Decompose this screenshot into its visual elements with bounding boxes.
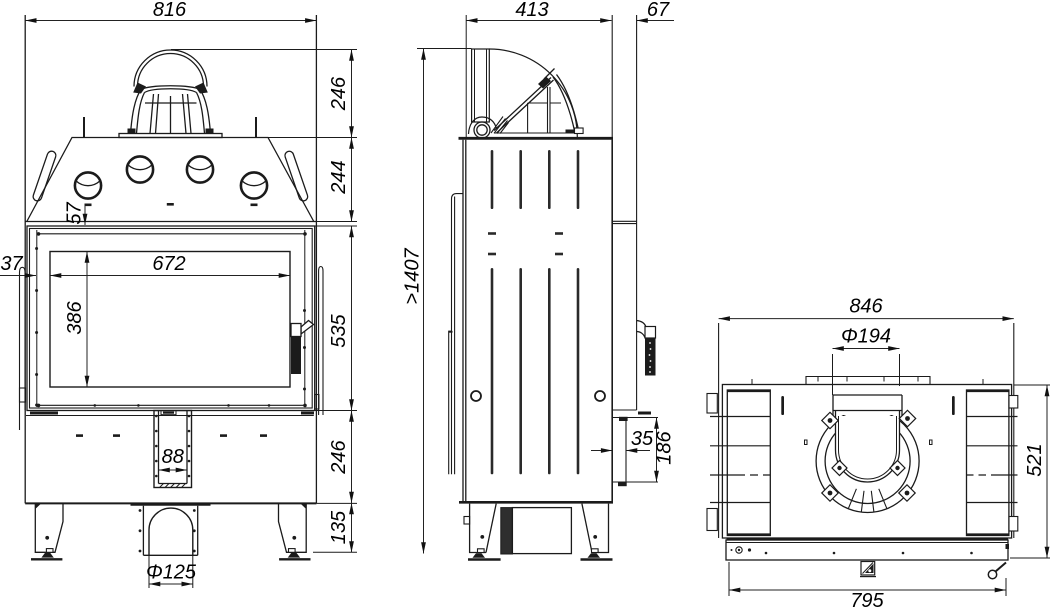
svg-text:795: 795 bbox=[850, 590, 884, 609]
svg-text:846: 846 bbox=[849, 296, 883, 318]
svg-text:386: 386 bbox=[64, 300, 86, 334]
svg-text:37: 37 bbox=[0, 253, 23, 275]
svg-text:Φ125: Φ125 bbox=[146, 562, 197, 584]
svg-text:186: 186 bbox=[654, 430, 676, 464]
svg-text:Φ194: Φ194 bbox=[841, 326, 891, 348]
svg-text:246: 246 bbox=[328, 76, 350, 111]
svg-text:57: 57 bbox=[64, 202, 86, 225]
svg-text:246: 246 bbox=[328, 439, 350, 474]
svg-text:135: 135 bbox=[328, 510, 350, 544]
svg-text:244: 244 bbox=[328, 160, 350, 194]
svg-text:67: 67 bbox=[647, 0, 670, 21]
svg-text:88: 88 bbox=[162, 446, 184, 468]
svg-text:521: 521 bbox=[1024, 443, 1046, 476]
svg-text:672: 672 bbox=[152, 253, 185, 275]
svg-text:35: 35 bbox=[631, 428, 654, 450]
svg-text:816: 816 bbox=[153, 0, 187, 21]
svg-text:>1407: >1407 bbox=[402, 248, 424, 305]
svg-text:535: 535 bbox=[328, 313, 350, 347]
svg-text:413: 413 bbox=[515, 0, 548, 21]
